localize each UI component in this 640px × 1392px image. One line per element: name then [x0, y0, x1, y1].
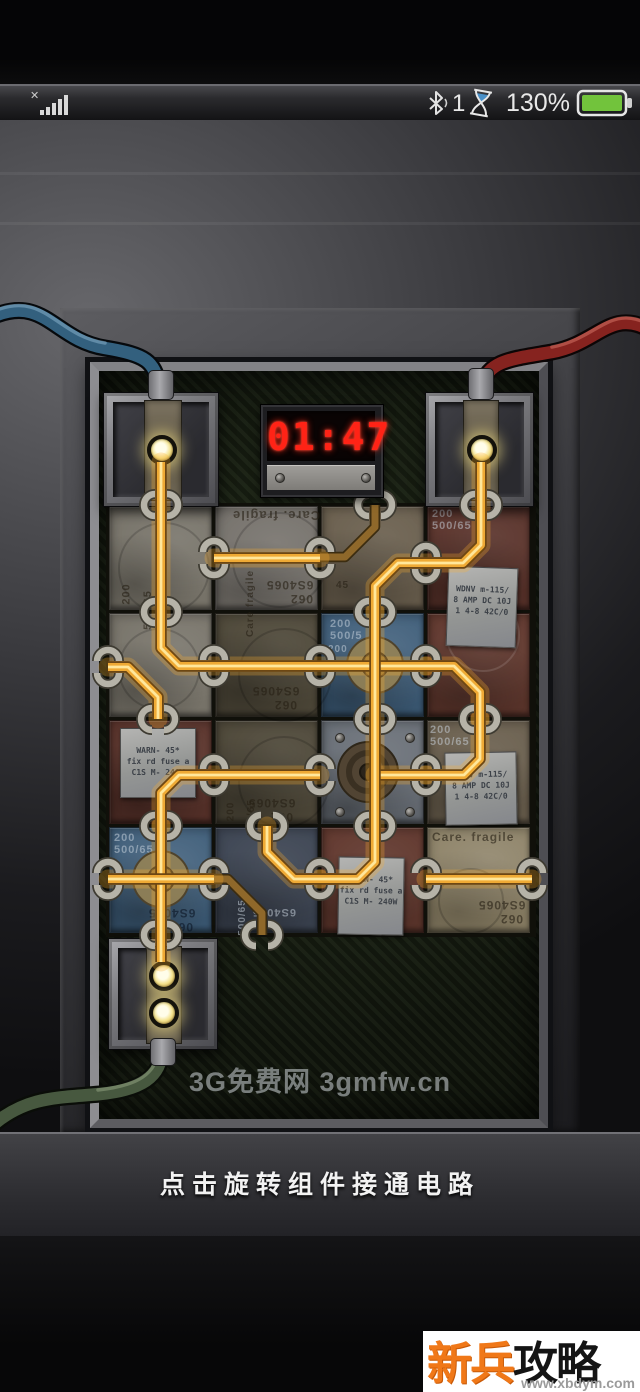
label-plate: WARN- 45*fix rd fuse aC1S M- 240W [337, 856, 404, 935]
screw [335, 807, 345, 817]
tile-stencil-text: 062 [500, 912, 523, 926]
tile-stencil-text: 200 [330, 618, 351, 630]
tile-stencil-text: 062 [274, 698, 297, 712]
tile-stencil-text: 500/65 [246, 799, 257, 836]
tile-stencil-text: 200 [114, 832, 135, 844]
terminal-led [147, 435, 177, 465]
terminal-led [467, 435, 497, 465]
label-plate: WARN- 45*fix rd fuse aC1S M- 240W [120, 728, 196, 798]
tile-stencil-text: 500/65 [430, 736, 470, 748]
tile-stencil-text: Care fragile [245, 570, 256, 637]
signal-icon: ✕ [26, 86, 86, 120]
battery-percent: 130% [506, 89, 570, 118]
screw [405, 807, 415, 817]
tile-stencil-text: 200 [121, 583, 133, 604]
status-bar: ✕ 1 130% [0, 84, 640, 120]
site-logo-url: www.xbdym.com [521, 1375, 635, 1391]
site-logo-highlight: 新兵 [427, 1338, 513, 1389]
tile-stencil-text: 500/5 [330, 630, 363, 642]
tile-stencil-text: 500/65 [237, 899, 248, 936]
tile-stencil-text: 062 [290, 592, 313, 606]
tile-stencil-text: 45 [336, 580, 349, 591]
tile-stencil-text: 200 [225, 802, 236, 822]
tile-r0c2[interactable] [321, 506, 424, 610]
bluetooth-count: 1 [452, 90, 465, 118]
label-plate: WDNV m-115/8 AMP DC 10J1 4-8 42C/0 [444, 751, 517, 825]
tile-stencil-text: 062 [170, 920, 193, 934]
tile-stencil-text: Care. fragile [432, 830, 514, 844]
tile-stencil-text: 062 [270, 810, 293, 824]
tile-stencil-text: 200 [432, 508, 453, 520]
hint-caption: 点击旋转组件接通电路 [0, 1165, 640, 1201]
tile-stencil-text: 200 [328, 644, 348, 655]
tile-stencil-text: 6S4065 [478, 898, 525, 912]
tile-stencil-text: 500/65 [114, 844, 154, 856]
tile-stencil-text: 500/65 [432, 520, 472, 532]
screw [405, 733, 415, 743]
screw [275, 473, 285, 483]
terminal-led [149, 961, 179, 991]
countdown-timer: 01:47 [260, 404, 384, 498]
label-plate: WDNV m-115/8 AMP DC 10J1 4-8 42C/0 [446, 566, 519, 648]
bluetooth-icon [426, 89, 452, 119]
site-logo: 新兵攻略网 www.xbdym.com [423, 1331, 640, 1392]
hourglass-icon [468, 88, 498, 122]
watermark-text: 3G免费网 3gmfw.cn [0, 1060, 640, 1099]
tile-stencil-text: 6S4065 [266, 578, 313, 592]
terminal-box-top-left [103, 392, 219, 507]
terminal-box-bottom-left [108, 938, 218, 1050]
wall-seam [0, 222, 640, 225]
stamp-ring [118, 628, 200, 710]
tile-stencil-text: 500/65 [142, 590, 154, 630]
wall-seam [0, 172, 640, 175]
terminal-box-top-right [425, 392, 534, 507]
tile-stencil-text: 6S4065 [252, 684, 299, 698]
cable-grommet [148, 370, 174, 400]
top-bezel [0, 0, 640, 84]
tile-stencil-text: 6S4065 [252, 906, 296, 918]
timer-display: 01:47 [267, 411, 375, 461]
tile-stencil-text: 6S4065 [148, 906, 195, 920]
tile-stencil-text: Care. fragile [232, 508, 320, 523]
terminal-led [149, 998, 179, 1028]
phone-screen: ✕ 1 130% Care. fragileCa [0, 0, 640, 1392]
battery-icon [576, 86, 638, 120]
cable-grommet [468, 368, 494, 400]
tile-stencil-text: 200 [430, 724, 451, 736]
svg-text:✕: ✕ [30, 90, 39, 102]
screw [335, 733, 345, 743]
screw [361, 473, 371, 483]
